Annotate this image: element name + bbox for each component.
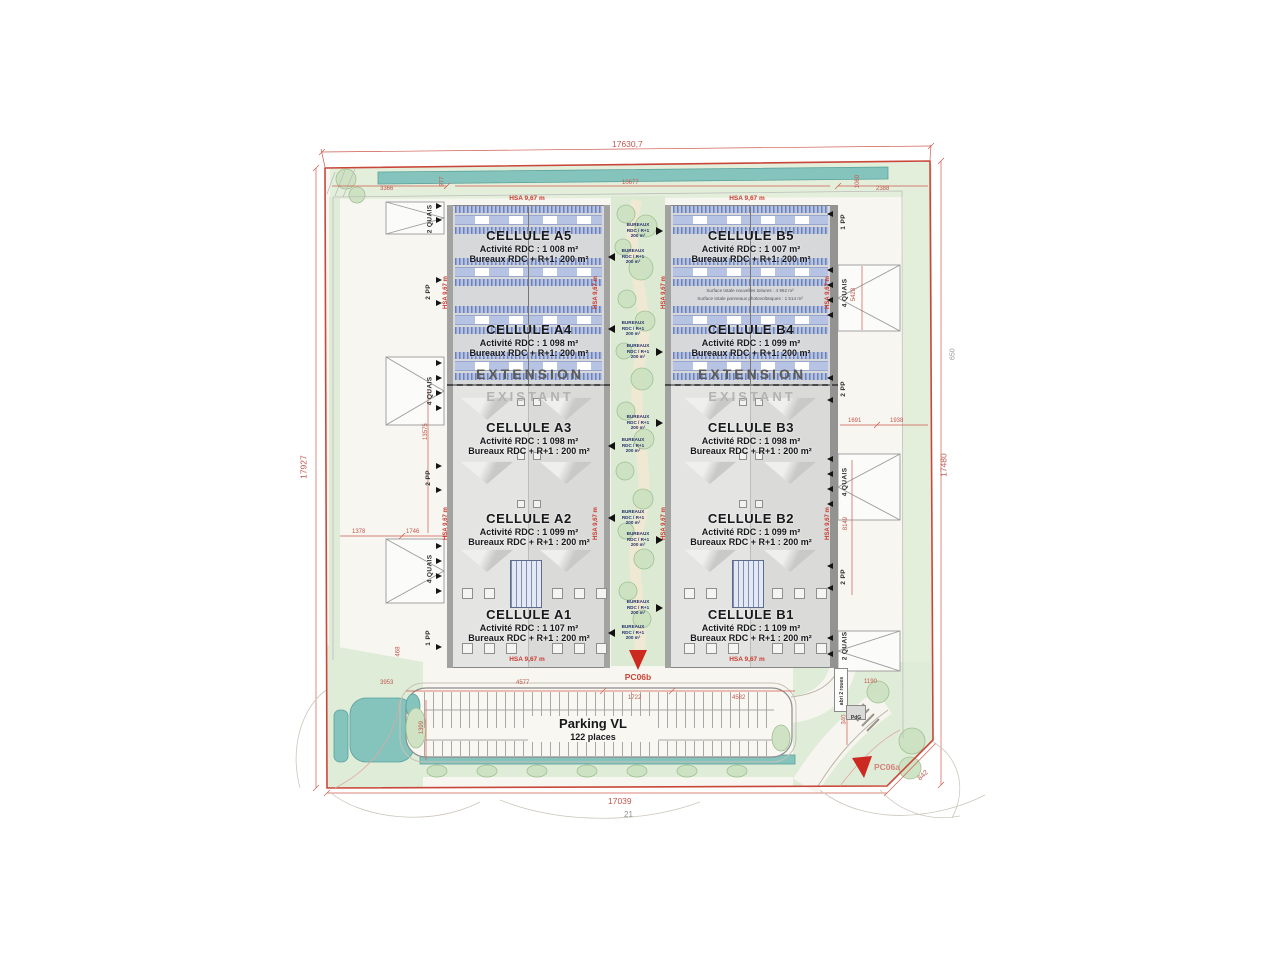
bureaux-label: BUREAUXRDC / R+1200 m²	[622, 599, 663, 616]
cell-label-b3: CELLULE B3 Activité RDC : 1 098 m² Burea…	[661, 420, 841, 457]
arrow-left-icon	[608, 442, 615, 450]
arrow-left-icon	[608, 253, 615, 261]
bureaux-label: BUREAUXRDC / R+1200 m²	[622, 414, 663, 431]
dim-label: 340	[841, 715, 848, 725]
dock-label: 1 PP	[425, 630, 433, 646]
dim-label: 10677	[622, 180, 639, 187]
bureaux-label: BUREAUXRDC / R+1200 m²	[622, 531, 663, 548]
hsa-label-vertical: HSA 9,67 m	[593, 276, 600, 309]
hsa-label-vertical: HSA 9,67 m	[443, 276, 450, 309]
cell-label-b5: CELLULE B5 Activité RDC : 1 007 m² Burea…	[661, 228, 841, 265]
hsa-label-vertical: HSA 9,67 m	[661, 276, 668, 309]
arrow-left-icon	[608, 514, 615, 522]
cell-label-a4: CELLULE A4 Activité RDC : 1 098 m² Burea…	[439, 322, 619, 359]
page-number: 21	[624, 810, 633, 820]
dock-label: 2 PP	[840, 381, 848, 397]
cell-label-a5: CELLULE A5 Activité RDC : 1 008 m² Burea…	[439, 228, 619, 265]
arrow-left-icon	[608, 325, 615, 333]
extension-limit-line	[447, 384, 610, 386]
dock-label: 4 QUAIS	[427, 376, 435, 405]
dim-label: 4582	[732, 695, 745, 702]
dock-label: 2 PP	[425, 284, 433, 300]
dim-label: 2388	[876, 186, 889, 193]
dim-label: 17039	[608, 796, 632, 806]
cell-label-b4: CELLULE B4 Activité RDC : 1 099 m² Burea…	[661, 322, 841, 359]
dim-label: 3366	[380, 186, 393, 193]
dim-label: 1691	[848, 418, 861, 425]
dock-label: 4 QUAIS	[842, 467, 850, 496]
dim-label: 468	[395, 647, 402, 657]
surface-note-line1: Surface totale nouvelles toitures : 4 96…	[665, 288, 835, 294]
dock-label: 2 QUAIS	[842, 631, 850, 660]
stair-grid	[732, 560, 764, 608]
dim-label: 4577	[516, 680, 529, 687]
dim-label: 1938	[890, 418, 903, 425]
arrow-right-icon	[656, 348, 663, 356]
cell-label-a3: CELLULE A3 Activité RDC : 1 098 m² Burea…	[439, 420, 619, 457]
extension-label: EXTENSION	[672, 366, 832, 383]
cell-label-b1: CELLULE B1 Activité RDC : 1 109 m² Burea…	[661, 607, 841, 644]
extension-label: EXTENSION	[450, 366, 610, 383]
stair-grid	[510, 560, 542, 608]
arrow-right-icon	[656, 536, 663, 544]
hsa-label-vertical: HSA 9,67 m	[825, 507, 832, 540]
dim-label: 1722	[628, 695, 641, 702]
arrow-right-icon	[656, 227, 663, 235]
hsa-label: HSA 9,67 m	[717, 195, 777, 203]
bike-shelter-label: abri 2 roues	[839, 668, 845, 714]
dim-label: 977	[439, 177, 446, 187]
dock-label: 2 PP	[425, 470, 433, 486]
site-plan-canvas: CELLULE A5 Activité RDC : 1 008 m² Burea…	[0, 0, 1280, 960]
cell-label-a1: CELLULE A1 Activité RDC : 1 107 m² Burea…	[439, 607, 619, 644]
hsa-label: HSA 9,67 m	[717, 656, 777, 664]
dock-label: 4 QUAIS	[427, 554, 435, 583]
hsa-label: HSA 9,67 m	[497, 656, 557, 664]
arrow-left-icon	[608, 629, 615, 637]
dim-label: 8149	[843, 517, 850, 530]
surface-note-line2: Surface totale panneaux photovoltaïques …	[665, 296, 835, 302]
cell-label-b2: CELLULE B2 Activité RDC : 1 099 m² Burea…	[661, 511, 841, 548]
arrow-right-icon	[656, 604, 663, 612]
dim-label: 650	[950, 348, 958, 360]
bureaux-label: BUREAUXRDC / R+1200 m²	[608, 509, 649, 526]
bureaux-label: BUREAUXRDC / R+1200 m²	[622, 343, 663, 360]
existant-label: EXISTANT	[450, 389, 610, 405]
dim-label: 5428	[851, 288, 858, 301]
pdg-box: PdG	[846, 705, 866, 720]
pdg-label: PdG	[851, 715, 861, 721]
existant-label: EXISTANT	[672, 389, 832, 405]
parking-stalls-bottom	[424, 741, 774, 756]
parking-label: Parking VL 122 places	[528, 716, 658, 742]
dim-label: 13575	[423, 423, 430, 440]
marker-pc06b: PC06b	[618, 672, 658, 682]
dock-label: 4 QUAIS	[842, 278, 850, 307]
hsa-label-vertical: HSA 9,67 m	[593, 507, 600, 540]
arrow-right-icon	[656, 419, 663, 427]
dim-label: 1399	[419, 721, 426, 734]
dock-label: 2 PP	[840, 569, 848, 585]
hsa-label-vertical: HSA 9,67 m	[443, 507, 450, 540]
bureaux-label: BUREAUXRDC / R+1200 m²	[608, 624, 649, 641]
extension-limit-line	[665, 384, 838, 386]
bureaux-label: BUREAUXRDC / R+1200 m²	[608, 437, 649, 454]
bureaux-label: BUREAUXRDC / R+1200 m²	[622, 222, 663, 239]
dock-label: 1 PP	[840, 214, 848, 230]
bureaux-label: BUREAUXRDC / R+1200 m²	[608, 248, 649, 265]
dim-label: 17480	[939, 453, 949, 477]
marker-pc06a: PC06a	[874, 762, 900, 772]
bureaux-label: BUREAUXRDC / R+1200 m²	[608, 320, 649, 337]
dim-label: 17927	[299, 455, 309, 479]
dock-label: 2 QUAIS	[427, 204, 435, 233]
dim-label: 1746	[406, 529, 419, 536]
hsa-label: HSA 9,67 m	[497, 195, 557, 203]
dim-label: 1378	[352, 529, 365, 536]
dim-label: 3953	[380, 680, 393, 687]
dim-label: 17630,7	[612, 139, 643, 149]
dim-label: 1060	[855, 175, 862, 188]
dim-label: 1190	[864, 679, 877, 686]
